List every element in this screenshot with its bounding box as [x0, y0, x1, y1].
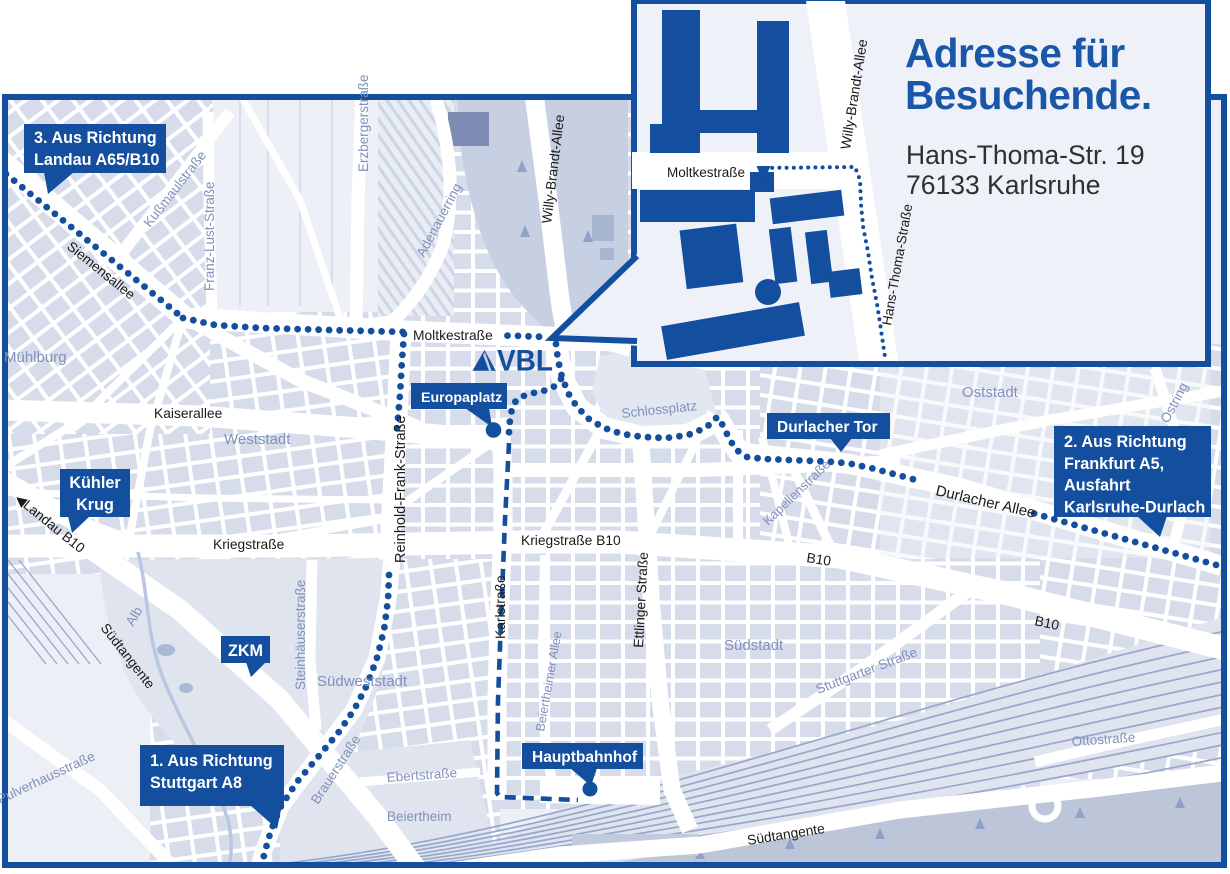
svg-text:Frankfurt A5,: Frankfurt A5,: [1064, 455, 1164, 473]
svg-text:Kaiserallee: Kaiserallee: [154, 406, 223, 421]
svg-text:Südstadt: Südstadt: [724, 637, 784, 654]
svg-text:2. Aus Richtung: 2. Aus Richtung: [1064, 433, 1187, 451]
svg-text:Kriegstraße: Kriegstraße: [213, 537, 285, 552]
svg-text:Südweststadt: Südweststadt: [317, 673, 408, 690]
svg-text:Franz-Lust-Straße: Franz-Lust-Straße: [202, 181, 217, 291]
svg-text:Adresse für: Adresse für: [905, 30, 1125, 76]
svg-text:Moltkestraße: Moltkestraße: [667, 165, 745, 180]
svg-text:Besuchende.: Besuchende.: [905, 72, 1152, 118]
svg-text:Hans-Thoma-Str. 19: Hans-Thoma-Str. 19: [906, 140, 1145, 170]
svg-text:Erzbergerstraße: Erzbergerstraße: [356, 74, 371, 172]
svg-text:Durlacher Tor: Durlacher Tor: [777, 419, 878, 436]
svg-text:Moltkestraße: Moltkestraße: [413, 328, 493, 343]
svg-text:Mühlburg: Mühlburg: [4, 349, 67, 366]
svg-text:Landau A65/B10: Landau A65/B10: [34, 151, 159, 169]
svg-text:Steinhäuserstraße: Steinhäuserstraße: [293, 580, 308, 690]
svg-text:Krug: Krug: [76, 496, 114, 514]
svg-text:VBL: VBL: [497, 345, 553, 378]
svg-text:Karlstraße: Karlstraße: [493, 575, 508, 639]
svg-text:Hauptbahnhof: Hauptbahnhof: [532, 749, 638, 766]
svg-text:Reinhold-Frank-Straße: Reinhold-Frank-Straße: [393, 416, 409, 563]
svg-text:Oststadt: Oststadt: [962, 384, 1019, 401]
svg-text:1. Aus Richtung: 1. Aus Richtung: [150, 752, 273, 770]
svg-text:Stuttgart A8: Stuttgart A8: [150, 774, 242, 792]
svg-text:Kriegstraße B10: Kriegstraße B10: [521, 533, 621, 548]
svg-text:Kühler: Kühler: [69, 474, 121, 492]
svg-text:76133 Karlsruhe: 76133 Karlsruhe: [906, 170, 1100, 200]
svg-text:Europaplatz: Europaplatz: [421, 390, 502, 406]
svg-text:Ausfahrt: Ausfahrt: [1064, 477, 1131, 495]
svg-text:Weststadt: Weststadt: [224, 431, 291, 448]
svg-text:Karlsruhe-Durlach: Karlsruhe-Durlach: [1064, 498, 1205, 516]
svg-text:ZKM: ZKM: [228, 642, 263, 660]
svg-text:3. Aus Richtung: 3. Aus Richtung: [34, 129, 157, 147]
svg-text:Beiertheim: Beiertheim: [387, 809, 452, 824]
